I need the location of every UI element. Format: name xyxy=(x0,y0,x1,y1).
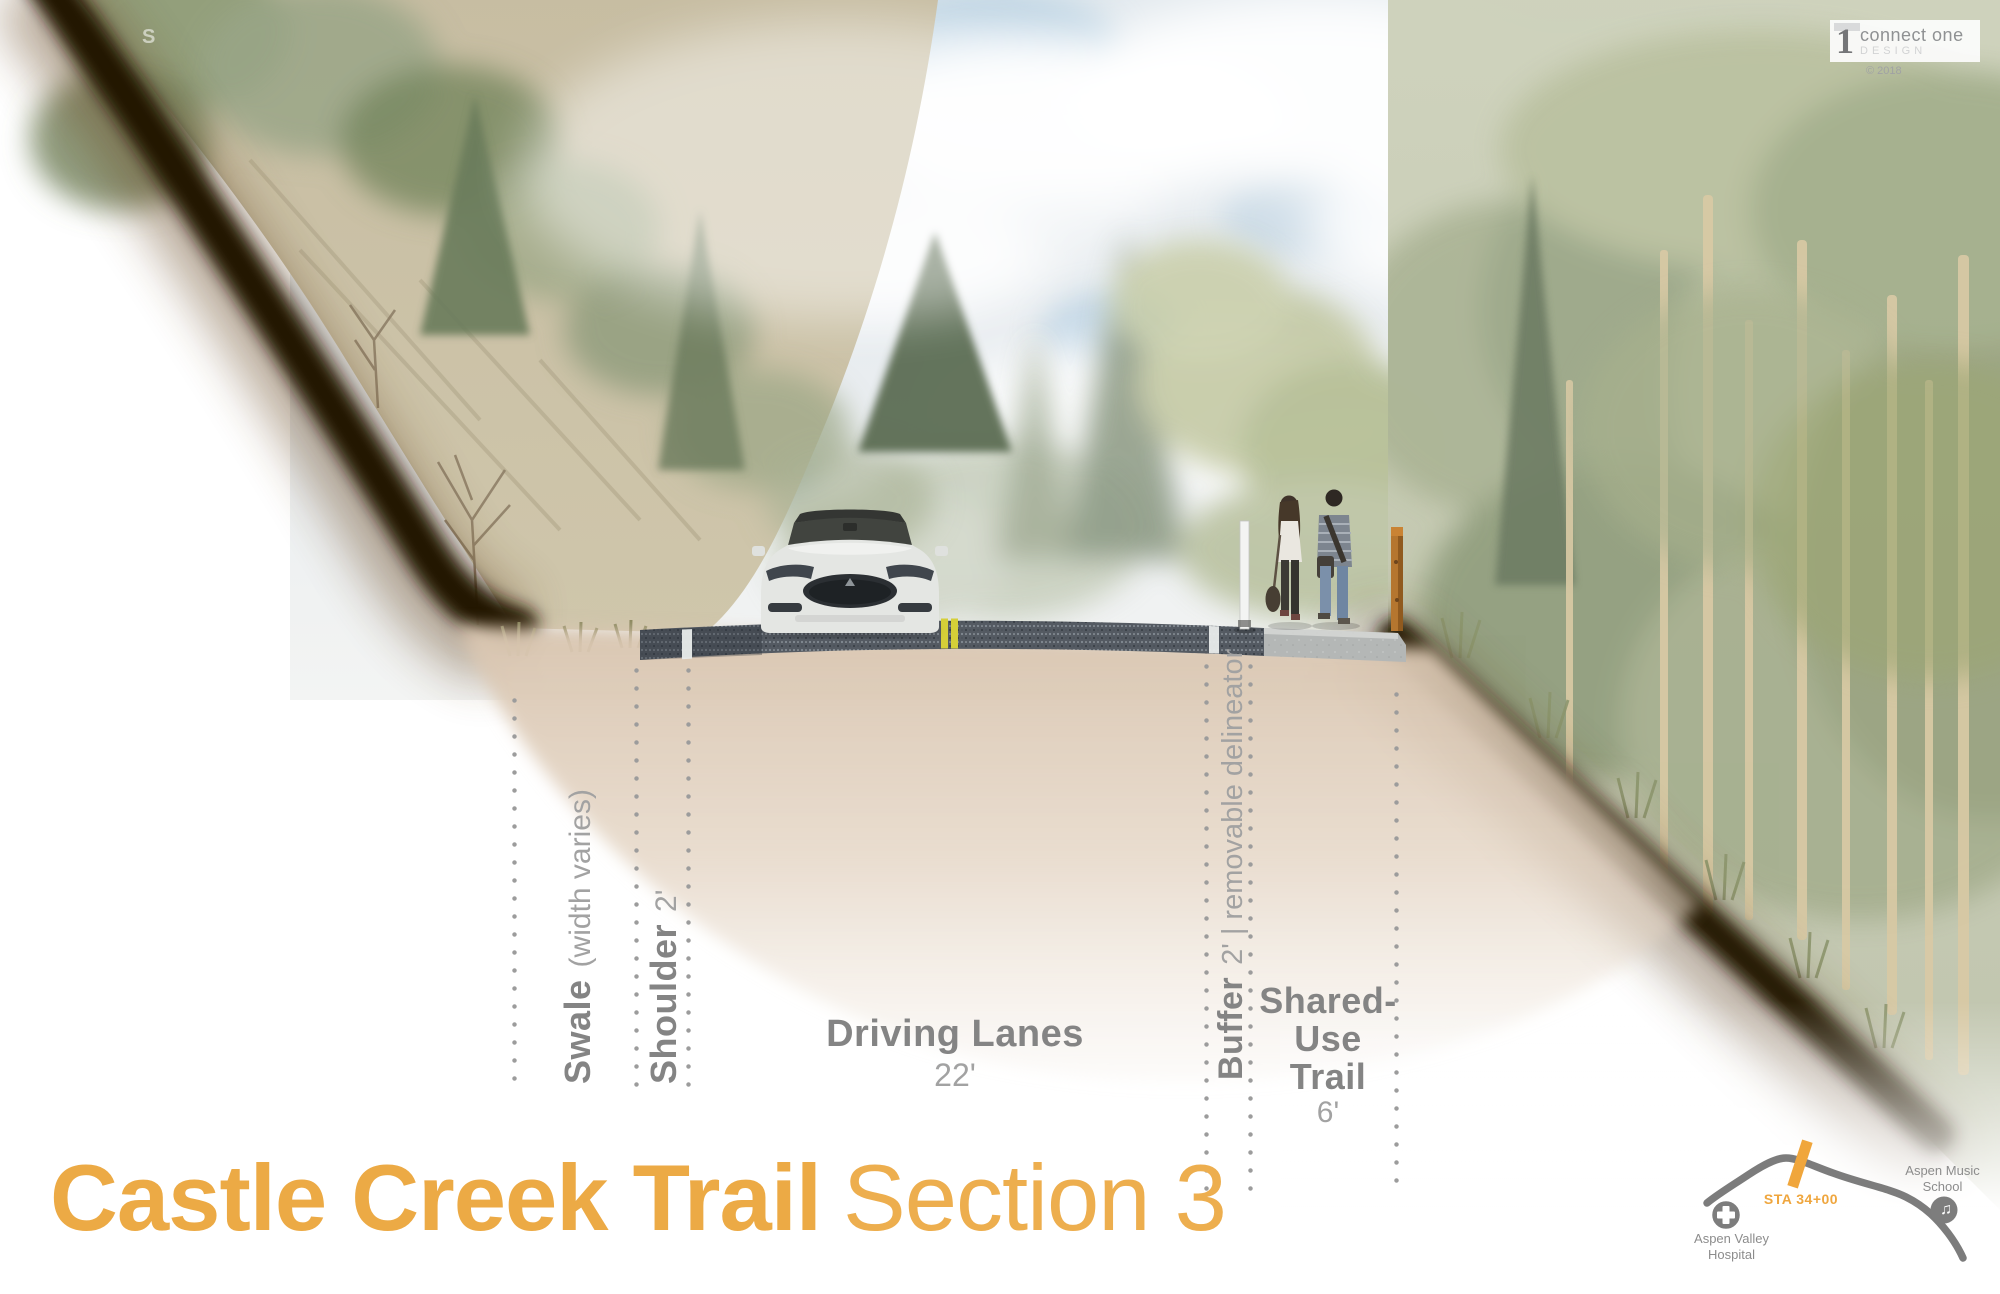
shared-use-trail-label-detail: 6' xyxy=(1253,1096,1403,1130)
hospital-label-line1: Aspen Valley xyxy=(1664,1231,1799,1247)
connect-one-logo-box: 1 connect one DESIGN xyxy=(1830,20,1980,62)
center-line-yellow-2 xyxy=(951,619,958,649)
swale-label-name: Swale xyxy=(557,979,598,1084)
dim-line-swale-left xyxy=(512,698,517,1094)
wooden-post xyxy=(1391,527,1403,631)
swale-label-detail: (width varies) xyxy=(564,789,597,967)
shoulder-label-name: Shoulder xyxy=(643,924,684,1084)
trail-section-sheet: S Swale(width varies) Shoulder2' Buffer2… xyxy=(0,0,2000,1294)
driving-lanes-label: Driving Lanes 22' xyxy=(810,1012,1100,1094)
center-line-yellow-1 xyxy=(941,619,948,649)
hospital-label-line2: Hospital xyxy=(1664,1247,1799,1263)
buffer-label: Buffer2' | removable delineator xyxy=(1211,649,1258,1080)
logo-brand-text: connect one xyxy=(1860,25,1964,45)
shared-use-trail-label: Shared- Use Trail 6' xyxy=(1253,982,1403,1130)
swale-label: Swale(width varies) xyxy=(558,789,606,1084)
shoulder-label: Shoulder2' xyxy=(644,890,692,1084)
logo-copyright: © 2018 xyxy=(1866,65,1980,77)
shared-use-trail-label-line1: Shared- xyxy=(1253,982,1403,1020)
school-label: Aspen Music School xyxy=(1875,1163,2000,1195)
shared-use-trail-label-line2: Use Trail xyxy=(1253,1020,1403,1096)
buffer-label-name: Buffer xyxy=(1212,977,1250,1080)
logo-subtitle-text: DESIGN xyxy=(1860,45,1964,58)
station-label: STA 34+00 xyxy=(1745,1191,1857,1207)
dim-line-swale-right xyxy=(634,668,639,1094)
shoulder-pavement xyxy=(640,625,762,660)
hospital-label: Aspen Valley Hospital xyxy=(1664,1231,1799,1263)
watermark-letter: S xyxy=(142,26,155,49)
hospital-icon xyxy=(1711,1200,1741,1230)
sheet-title-suffix: Section 3 xyxy=(843,1145,1226,1250)
buffer-label-detail: 2' | removable delineator xyxy=(1217,649,1249,965)
school-label-line1: Aspen Music xyxy=(1875,1163,2000,1179)
sheet-title-main: Castle Creek Trail xyxy=(50,1145,821,1250)
sheet-title: Castle Creek TrailSection 3 xyxy=(50,1146,1226,1250)
dim-line-buffer-left xyxy=(1204,664,1209,1192)
connect-one-logo-icon: 1 xyxy=(1834,23,1860,59)
edge-line-left xyxy=(682,629,692,659)
music-note-icon: ♫ xyxy=(1933,1199,1959,1221)
school-label-line2: School xyxy=(1875,1179,2000,1195)
driving-lanes-label-detail: 22' xyxy=(810,1056,1100,1094)
connect-one-logo: 1 connect one DESIGN © 2018 xyxy=(1830,20,1980,77)
shoulder-label-detail: 2' xyxy=(650,890,683,912)
driving-lanes-label-name: Driving Lanes xyxy=(810,1012,1100,1056)
